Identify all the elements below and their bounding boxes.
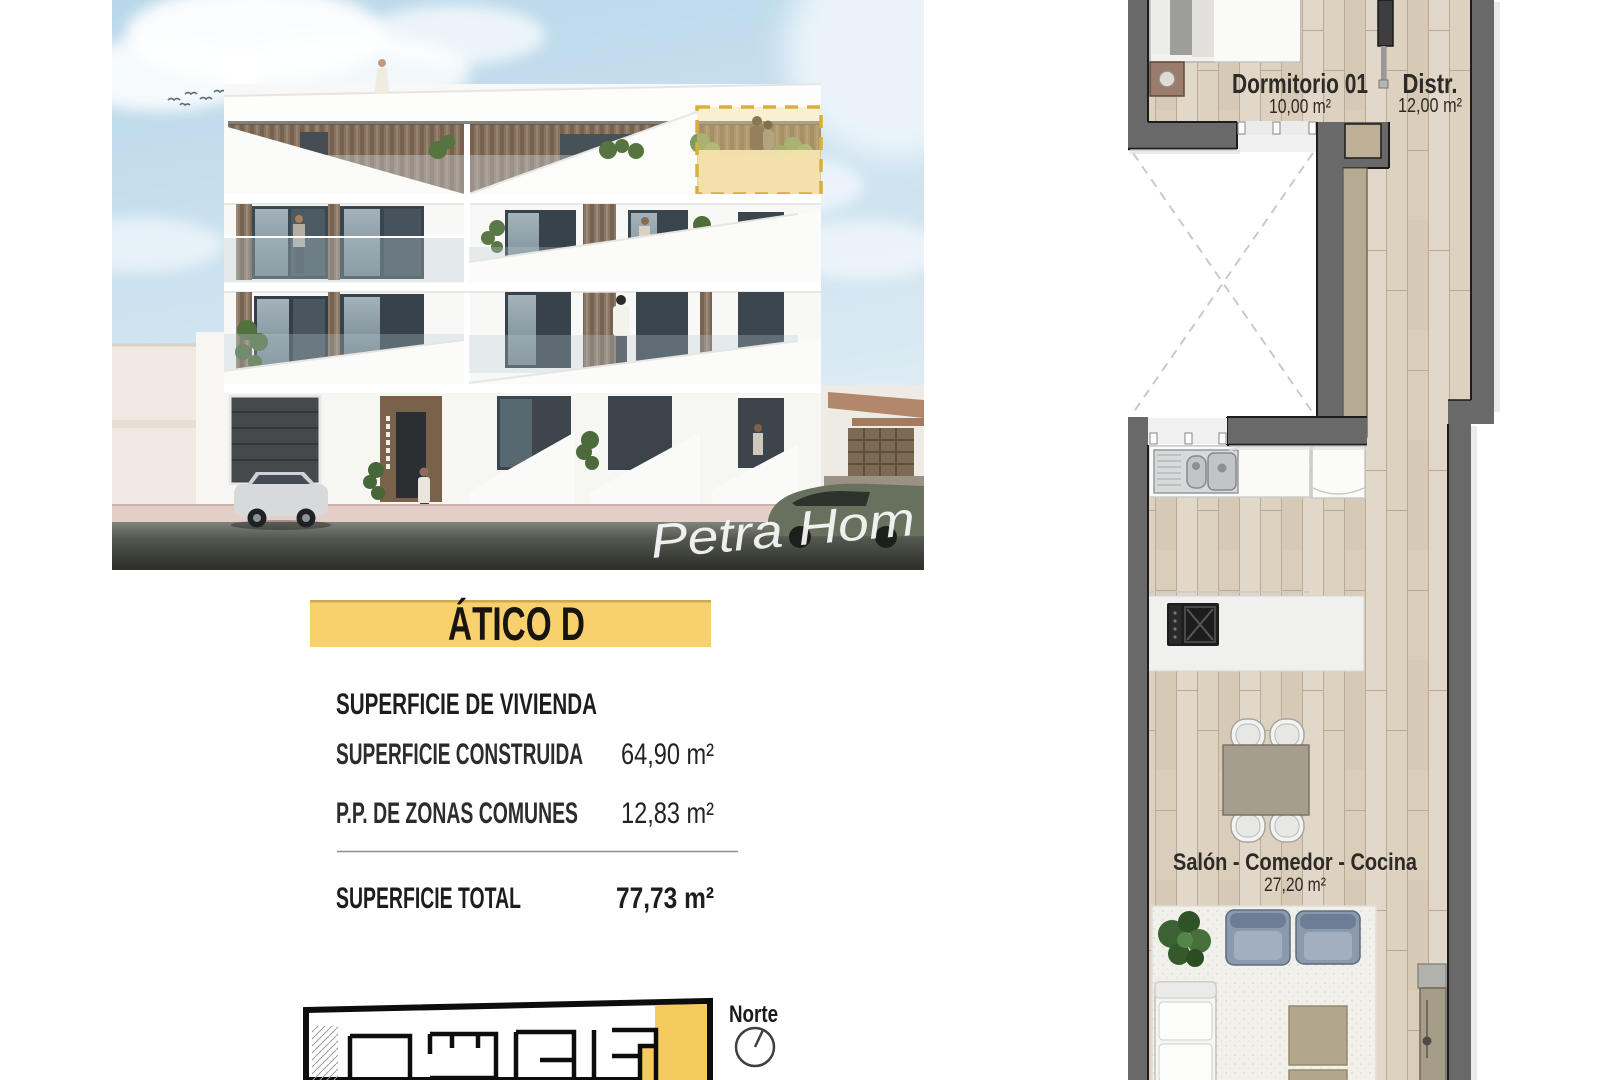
svg-text:Salón - Comedor - Cocina: Salón - Comedor - Cocina: [1173, 849, 1418, 876]
svg-text:SUPERFICIE DE VIVIENDA: SUPERFICIE DE VIVIENDA: [336, 688, 597, 721]
svg-text:12,00 m²: 12,00 m²: [1398, 95, 1462, 117]
svg-text:P.P. DE ZONAS COMUNES: P.P. DE ZONAS COMUNES: [336, 797, 578, 830]
svg-text:SUPERFICIE TOTAL: SUPERFICIE TOTAL: [336, 882, 521, 915]
svg-text:ÁTICO D: ÁTICO D: [448, 597, 585, 650]
svg-text:10,00 m²: 10,00 m²: [1269, 96, 1331, 118]
svg-text:Dormitorio 01: Dormitorio 01: [1232, 68, 1368, 99]
svg-text:SUPERFICIE CONSTRUIDA: SUPERFICIE CONSTRUIDA: [336, 738, 583, 771]
svg-text:27,20 m²: 27,20 m²: [1264, 875, 1326, 896]
svg-text:12,83 m²: 12,83 m²: [621, 797, 714, 830]
svg-text:77,73 m²: 77,73 m²: [616, 882, 714, 915]
svg-text:64,90 m²: 64,90 m²: [621, 738, 714, 771]
svg-text:Norte: Norte: [729, 1001, 778, 1028]
